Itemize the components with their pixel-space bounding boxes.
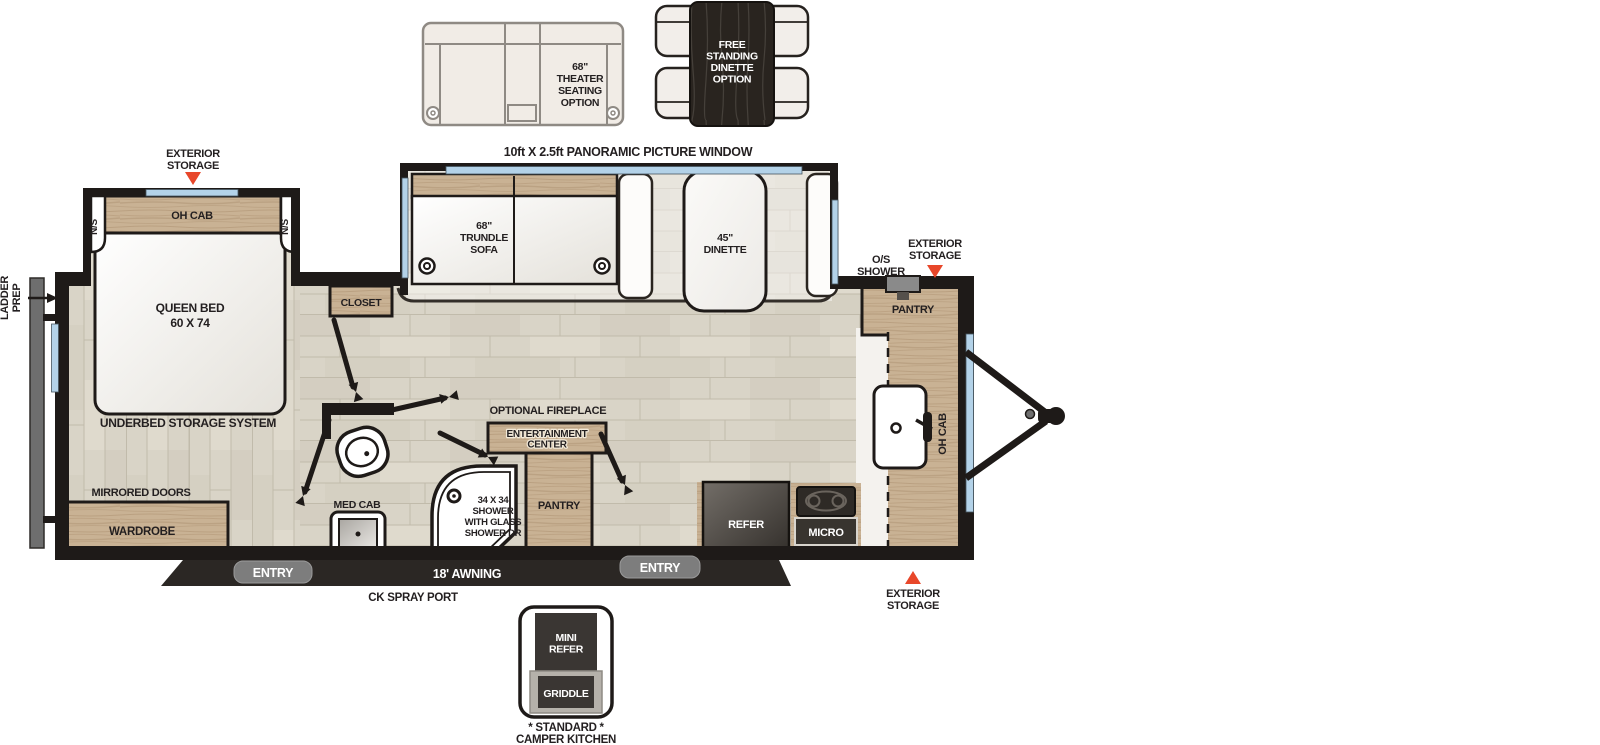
entry-front-badge: ENTRY [620,556,700,578]
camper-kitchen-caption: * STANDARD *CAMPER KITCHEN [516,722,616,745]
tongue-jack [1026,410,1035,419]
rear-window [52,324,59,392]
hitch-coupler [1047,407,1065,425]
entry-front-label: ENTRY [640,561,681,575]
dinette-bench-left [619,174,652,298]
refrigerator [703,482,789,554]
ck-spray-port-label: CK SPRAY PORT [368,592,458,604]
slide-right-window [832,200,838,284]
awning-label: 18' AWNING [433,567,501,581]
wardrobe-label: WARDROBE [109,526,176,538]
exterior-storage-bottom-label: EXTERIORSTORAGE [886,588,940,612]
mirrored-doors-label: MIRRORED DOORS [91,487,190,499]
underbed-storage-label: UNDERBED STORAGE SYSTEM [100,416,277,430]
kitchen-oh-cab-label: OH CAB [937,413,949,455]
bedroom-oh-cab-label: OH CAB [171,210,213,222]
slide-left-window [402,178,408,278]
micro-label: MICRO [808,527,844,539]
entry-rear-label: ENTRY [253,566,294,580]
panoramic-window-callout: 10ft X 2.5ft PANORAMIC PICTURE WINDOW [504,145,753,159]
refer-label: REFER [728,519,764,531]
theater-seating-option: 68"THEATERSEATINGOPTION [423,23,623,125]
floorplan-canvas: 68"THEATERSEATINGOPTION FREESTANDINGDINE… [0,0,1600,745]
med-cab-label: MED CAB [334,499,382,511]
panoramic-window [446,167,802,175]
closet-label: CLOSET [341,297,383,309]
bedroom-slide-window [146,190,238,197]
bath-wall-north [322,403,394,415]
pantry-mid-label: PANTRY [538,500,581,512]
griddle-label: GRIDDLE [543,688,588,700]
exterior-storage-bedroom-label: EXTERIORSTORAGE [166,148,220,172]
optional-fireplace-label: OPTIONAL FIREPLACE [490,405,607,417]
ns-right-label: N/S [280,218,291,234]
entry-rear-badge: ENTRY [234,561,312,583]
pantry-front-label: PANTRY [892,304,935,316]
floorplan-page: 68"THEATERSEATINGOPTION FREESTANDINGDINE… [0,0,1600,745]
exterior-storage-front-label: EXTERIORSTORAGE [908,238,962,262]
camper-kitchen: MINIREFER GRIDDLE * STANDARD *CAMPER KIT… [516,607,616,745]
